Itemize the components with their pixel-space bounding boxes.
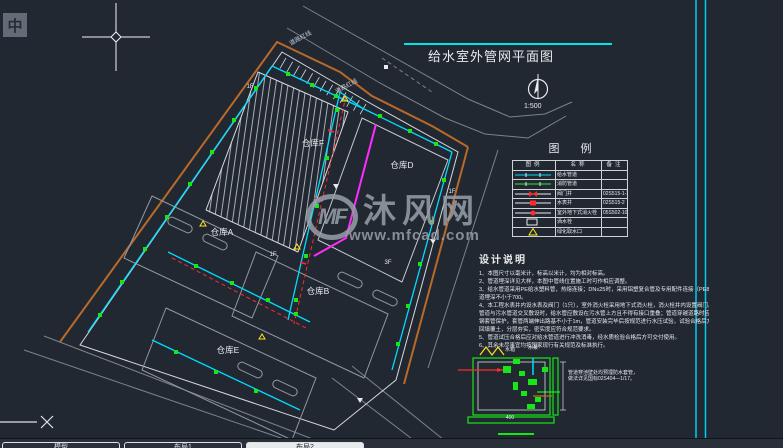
building-outlines bbox=[124, 72, 448, 440]
detail-note: 管道穿池壁处均预埋防水套管，做法详见国标02S404—1/17。 bbox=[568, 370, 688, 382]
legend-row: 室外地下式消火栓05S502-10 bbox=[513, 208, 627, 218]
meter-well-icon bbox=[513, 199, 556, 208]
green-tap-icon bbox=[513, 228, 556, 237]
legend-row: 水表井02S515-2 bbox=[513, 198, 627, 208]
valve-marker bbox=[418, 262, 422, 266]
north-arrow-icon bbox=[529, 74, 548, 99]
design-note-line: 6、其余未尽事宜均按国家现行有关规范及标准执行。 bbox=[479, 342, 709, 350]
layout-tab-2[interactable]: 布局1 bbox=[124, 442, 242, 448]
design-note-line: 2、管道埋深详见大样，本图中管线位置施工时可作相应调整。 bbox=[479, 278, 709, 286]
valve-marker bbox=[194, 264, 198, 268]
building-b bbox=[232, 252, 388, 378]
valve-marker bbox=[315, 204, 319, 208]
valve-well-icon bbox=[513, 190, 556, 199]
valve-marker bbox=[98, 313, 102, 317]
valve-marker bbox=[396, 342, 400, 346]
valve-marker bbox=[232, 118, 236, 122]
design-note-line: 1、本图尺寸以毫米计，标高以米计，均为相对标高。 bbox=[479, 270, 709, 278]
building-f-hatched bbox=[206, 72, 348, 252]
flow-arrow bbox=[333, 184, 339, 189]
valve-marker bbox=[143, 247, 147, 251]
hydrant-icon bbox=[513, 209, 556, 218]
legend-title: 图 例 bbox=[512, 140, 628, 156]
viewport-edge-lines bbox=[696, 0, 706, 448]
valve-marker bbox=[434, 142, 438, 146]
design-note-line: 3、给水管道采用PE给水塑料管，热熔连接；DN≤25时，采用铝塑复合管及专用配件… bbox=[479, 286, 709, 294]
valve-marker bbox=[254, 389, 258, 393]
valve-marker bbox=[335, 108, 339, 112]
design-notes: 设计说明 1、本图尺寸以毫米计，标高以米计，均为相对标高。2、管道埋深详见大样，… bbox=[479, 251, 709, 350]
valve-marker bbox=[442, 178, 446, 182]
hydrant-marker bbox=[259, 334, 265, 339]
detail-note-line: 做法详见国标02S404—1/17。 bbox=[568, 376, 688, 382]
ime-language-button[interactable]: 中 bbox=[3, 13, 27, 37]
valve-marker bbox=[266, 298, 270, 302]
legend-table: 图例名称备注给水管道消防管道阀门井02S515-1-3水表井02S515-2室外… bbox=[512, 160, 628, 237]
valve-marker bbox=[310, 83, 314, 87]
design-note-line: 钢套管保护，套管两端伸出路基不小于1m，管道安装完毕后按规范进行水压试验，试验合… bbox=[479, 318, 709, 326]
legend-header-row: 图例名称备注 bbox=[513, 161, 627, 170]
valve-marker bbox=[254, 86, 258, 90]
valve-marker bbox=[304, 254, 308, 258]
ucs-icon bbox=[0, 416, 53, 428]
valve-marker bbox=[325, 156, 329, 160]
design-note-line: 道埋深不小于700。 bbox=[479, 294, 709, 302]
valve-marker bbox=[406, 304, 410, 308]
valve-marker bbox=[378, 114, 382, 118]
legend-panel: 图 例 图例名称备注给水管道消防管道阀门井02S515-1-3水表井02S515… bbox=[512, 140, 628, 237]
detail-drawing bbox=[458, 347, 566, 434]
design-note-line: 5、管道试压合格后应对给水管道进行冲洗消毒，经水质检验合格后方可交付使用。 bbox=[479, 334, 709, 342]
valve-marker bbox=[230, 281, 234, 285]
grip-marker bbox=[384, 65, 388, 69]
valve-marker bbox=[165, 215, 169, 219]
valve-marker bbox=[120, 280, 124, 284]
legend-row: 绿化取水口 bbox=[513, 227, 627, 237]
sprinkler-icon bbox=[513, 218, 556, 227]
design-note-line: 4、本工程水表井内设水表及阀门（1只），室外消火栓采用地下式消火栓，消火栓井内设… bbox=[479, 302, 709, 310]
legend-row: 消防管道 bbox=[513, 179, 627, 189]
design-note-line: 管道与污水管道交叉敷设时，给水管应敷设在污水管上方且不得有接口重叠；管道穿越道路… bbox=[479, 310, 709, 318]
valve-marker bbox=[294, 312, 298, 316]
pipe-cyan-icon bbox=[513, 171, 556, 180]
design-note-line: 回填覆土，分层夯实，密实度应符合规范要求。 bbox=[479, 326, 709, 334]
cad-application-window: { "window": { "ime_button": "中" }, "draw… bbox=[0, 0, 783, 448]
flow-arrow bbox=[430, 239, 436, 244]
valve-marker bbox=[188, 182, 192, 186]
valve-marker bbox=[408, 129, 412, 133]
valve-marker bbox=[210, 150, 214, 154]
valve-marker bbox=[430, 220, 434, 224]
legend-row: 洒水栓 bbox=[513, 217, 627, 227]
layout-tab-1[interactable]: 模型 bbox=[2, 442, 120, 448]
pipe-green-icon bbox=[513, 180, 556, 189]
layout-tab-bar[interactable]: 模型布局1布局2 bbox=[0, 438, 783, 448]
valve-marker bbox=[294, 298, 298, 302]
title-underline bbox=[404, 43, 612, 45]
valve-marker bbox=[214, 370, 218, 374]
legend-row: 给水管道 bbox=[513, 170, 627, 180]
design-notes-title: 设计说明 bbox=[479, 251, 709, 266]
crosshair-cursor bbox=[82, 3, 150, 71]
design-notes-lines: 1、本图尺寸以毫米计，标高以米计，均为相对标高。2、管道埋深详见大样，本图中管线… bbox=[479, 270, 709, 350]
valve-marker bbox=[286, 72, 290, 76]
layout-tab-3[interactable]: 布局2 bbox=[246, 442, 364, 448]
legend-row: 阀门井02S515-1-3 bbox=[513, 189, 627, 199]
valve-marker bbox=[334, 94, 338, 98]
valve-marker bbox=[174, 350, 178, 354]
